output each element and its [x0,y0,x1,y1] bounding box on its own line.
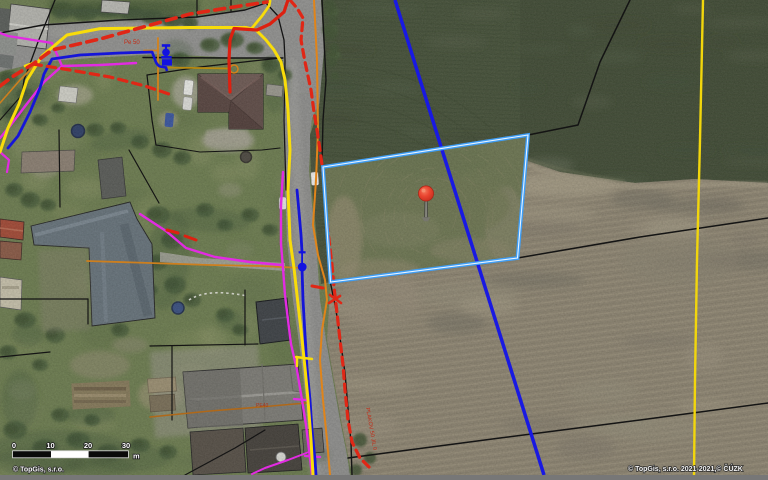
svg-text:PE40: PE40 [256,403,268,409]
svg-text:m: m [133,452,140,461]
svg-text:© TopGis, s.r.o. 2021-2021,© Č: © TopGis, s.r.o. 2021-2021,© ČÚZK [628,464,743,473]
svg-text:Pe 50: Pe 50 [124,40,140,46]
svg-text:20: 20 [84,441,92,450]
svg-text:© TopGis, s.r.o.: © TopGis, s.r.o. [13,466,64,474]
svg-text:0: 0 [12,441,16,450]
svg-text:30: 30 [122,441,130,450]
svg-text:10: 10 [46,441,54,450]
